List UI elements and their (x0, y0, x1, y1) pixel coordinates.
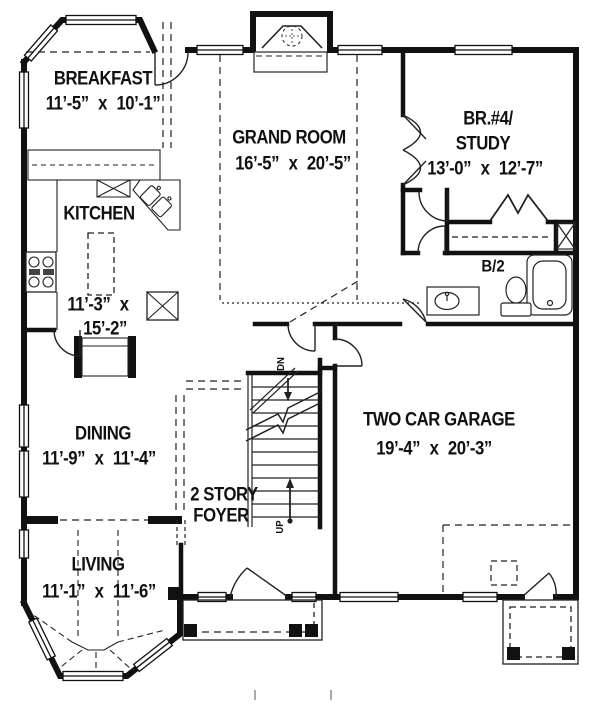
room-dims-br4: 13’-0” x 12’-7” (427, 160, 543, 179)
bifold-doors (490, 195, 548, 221)
room-label-br4: BR.#4/ (463, 110, 512, 129)
garage-porch (503, 600, 578, 664)
bath-door (418, 226, 445, 253)
hall-door (419, 192, 448, 221)
room-dims-garage: 19’-4” x 20’-3” (376, 440, 492, 459)
linen-closet (557, 223, 575, 249)
front-door (230, 568, 288, 597)
room-label-kitchen: KITCHEN (63, 205, 134, 224)
room-dims-living: 11’-1” x 11’-6” (42, 583, 156, 602)
room-label-half-bath: B/2 (481, 258, 504, 275)
room-label-garage: TWO CAR GARAGE (363, 411, 515, 430)
kitchen-island (88, 233, 114, 295)
room-label-foyer-1: 2 STORY (190, 486, 258, 505)
room-label-foyer-2: FOYER (193, 507, 248, 526)
breakfast-door (155, 52, 188, 85)
stair-label-down: DN (277, 357, 287, 371)
garage-entry-door (335, 339, 362, 366)
room-label-dining: DINING (75, 425, 131, 444)
room-label-living: LIVING (71, 556, 124, 575)
buffet-cabinet (82, 338, 128, 376)
vanity-sink (427, 287, 479, 315)
room-label-grand-room: GRAND ROOM (232, 129, 346, 148)
front-porch (183, 600, 322, 640)
room-dims-kitchen-2: 15’-2” (83, 320, 127, 339)
room-dims-dining: 11’-9” x 11’-4” (42, 450, 156, 469)
pantry-cabinet (147, 292, 178, 320)
room-dims-kitchen-1: 11’-3” x (67, 296, 128, 315)
kitchen-fixtures (26, 150, 180, 376)
walkway-marks (255, 690, 331, 700)
room-label-breakfast: BREAKFAST (54, 70, 152, 89)
hall-angled-door (403, 299, 426, 322)
garage-side-door (522, 573, 556, 597)
range-stove (26, 252, 56, 292)
garage-porch-columns (507, 647, 575, 660)
grand-hall-door (288, 324, 315, 351)
room-dims-grand-room: 16’-5” x 20’-5” (235, 155, 351, 174)
stair-label-up: UP (276, 520, 286, 533)
fireplace (254, 26, 327, 72)
room-label-study: STUDY (456, 135, 510, 154)
br4-double-doors (403, 115, 426, 185)
floor-plan: BREAKFAST 11’-5” x 10’-1” GRAND ROOM 16’… (0, 0, 600, 707)
bathtub (527, 255, 572, 315)
stair-down-arrow (284, 378, 292, 401)
porch-columns (184, 624, 318, 637)
room-dims-breakfast: 11’-5” x 10’-1” (46, 95, 161, 114)
